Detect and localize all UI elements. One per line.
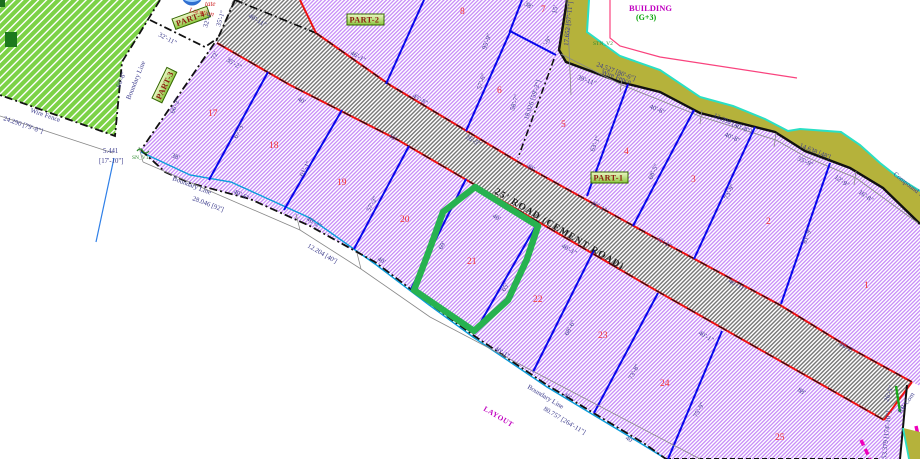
- svg-text:21: 21: [467, 257, 477, 267]
- svg-text:4: 4: [624, 147, 629, 157]
- svg-text:tate: tate: [205, 0, 216, 8]
- svg-text:18: 18: [269, 141, 279, 151]
- svg-text:19: 19: [337, 178, 347, 188]
- svg-text:8: 8: [460, 7, 465, 17]
- svg-text:[17'-10"]: [17'-10"]: [99, 158, 123, 165]
- svg-text:PART-1: PART-1: [594, 174, 624, 183]
- svg-text:2: 2: [766, 217, 771, 227]
- svg-text:1: 1: [864, 281, 869, 291]
- svg-text:25: 25: [775, 433, 785, 443]
- svg-text:5.441: 5.441: [103, 148, 118, 155]
- svg-text:6: 6: [497, 86, 502, 96]
- svg-text:20: 20: [400, 215, 410, 225]
- svg-text:STN_V2: STN_V2: [593, 41, 613, 47]
- svg-text:22: 22: [533, 295, 543, 305]
- svg-text:24: 24: [660, 379, 670, 389]
- svg-text:PART-2: PART-2: [350, 16, 380, 25]
- svg-text:3: 3: [691, 175, 696, 185]
- svg-text:7: 7: [541, 5, 546, 15]
- svg-text:23: 23: [598, 331, 608, 341]
- svg-text:SN_V1: SN_V1: [132, 155, 149, 161]
- svg-text:BUILDING: BUILDING: [629, 3, 672, 13]
- svg-text:(G+3): (G+3): [636, 13, 656, 22]
- svg-text:5: 5: [561, 120, 566, 130]
- svg-text:17: 17: [208, 109, 218, 119]
